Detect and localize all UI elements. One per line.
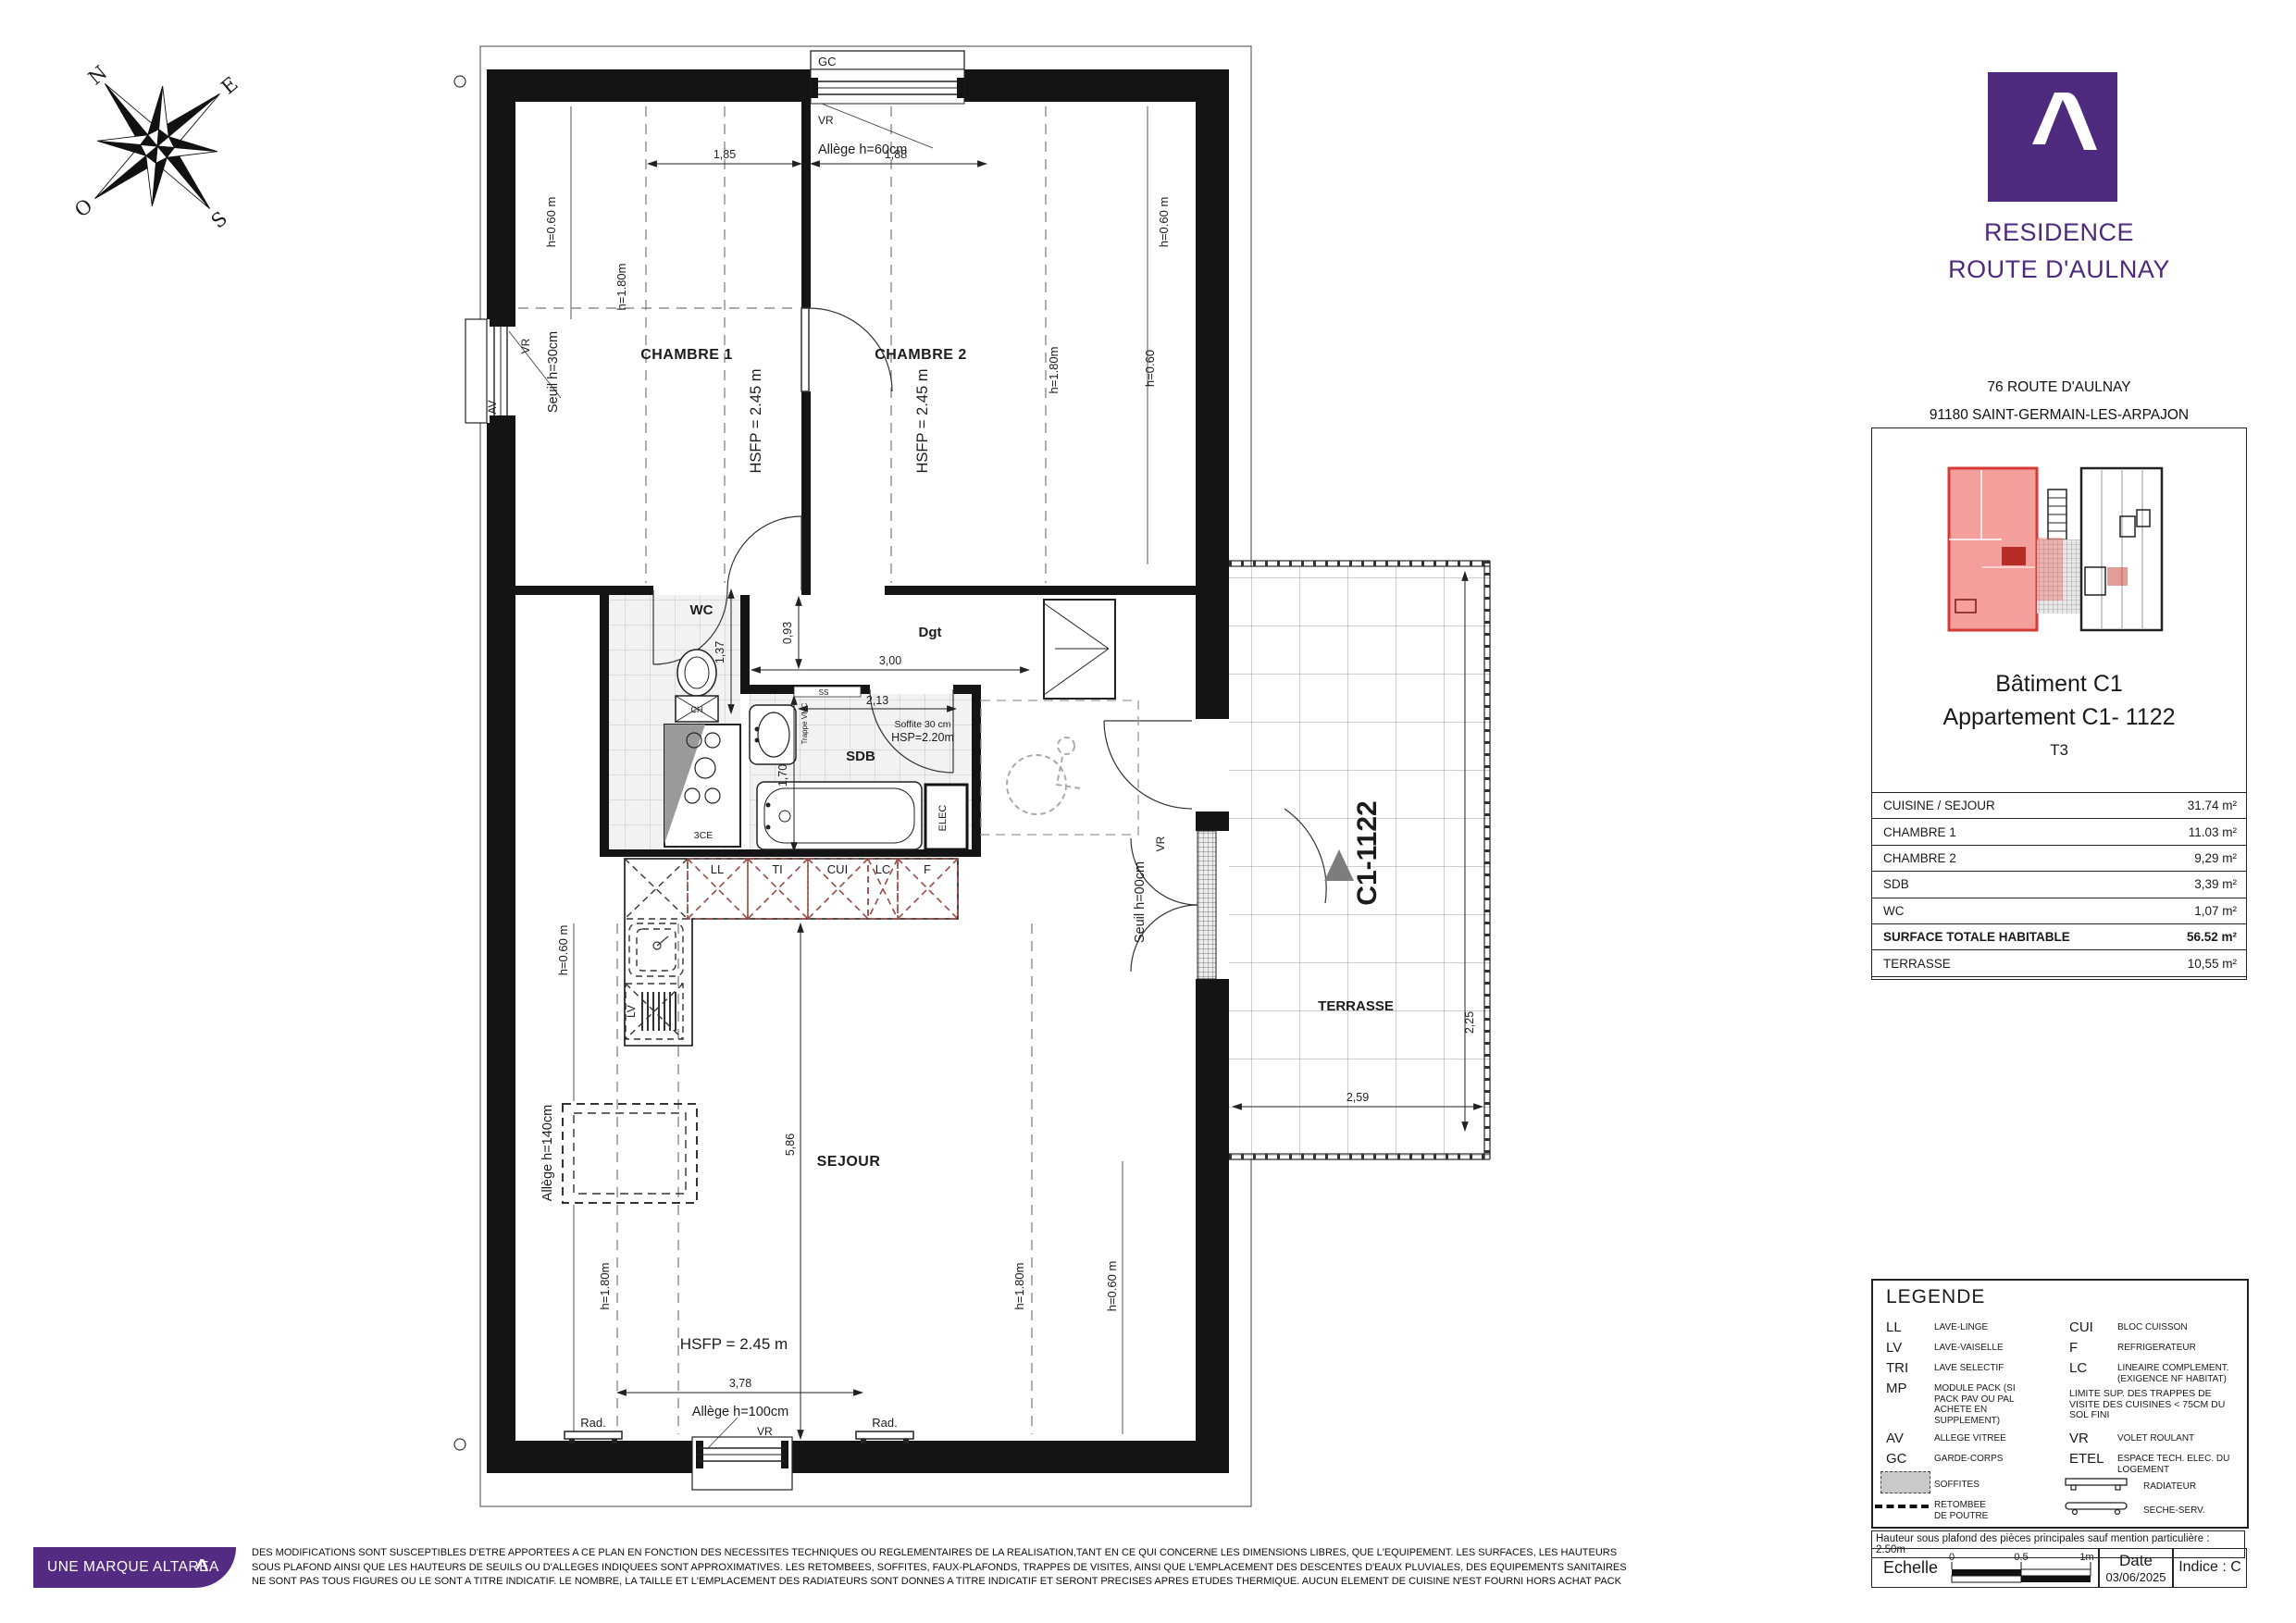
bay-allege140: Allège h=140cm xyxy=(540,1104,697,1203)
row-label: CUISINE / SEJOUR xyxy=(1883,799,1995,812)
terrasse-slider: VR Seuil h=00cm xyxy=(1131,831,1216,979)
compass-s: S xyxy=(207,207,231,233)
table-row: CUISINE / SEJOUR 31.74 m² xyxy=(1872,793,2246,819)
rad-right-label: Rad. xyxy=(872,1416,897,1430)
retombee-dash-icon xyxy=(1875,1505,1929,1508)
vr-left-label: VR xyxy=(519,338,532,353)
room-sejour: SEJOUR xyxy=(817,1154,881,1170)
dim-259: 2,59 xyxy=(1347,1091,1369,1104)
room-wc: WC xyxy=(690,602,714,618)
indice-value: Indice : C xyxy=(2178,1559,2241,1575)
floorplan-page: { "plan": { "compass": { "n": "N", "e": … xyxy=(0,0,2296,1623)
legend-abbr: AV xyxy=(1886,1431,1934,1446)
apartment-id-label: C1-1122 xyxy=(1352,800,1383,905)
unit-info-box: Bâtiment C1 Appartement C1- 1122 T3 CUIS… xyxy=(1871,427,2247,980)
kitchen-units xyxy=(688,859,958,919)
h060-left-mid: h=0.60 m xyxy=(556,925,570,976)
altarea-lambda-small-icon xyxy=(188,1555,212,1580)
floorplan-drawing: N E S O xyxy=(0,0,1860,1623)
compass-rose: N E S O xyxy=(11,2,304,296)
table-row: CHAMBRE 2 9,29 m² xyxy=(1872,846,2246,872)
legend-desc: LAVE-LINGE xyxy=(1934,1319,2045,1335)
room-dgt: Dgt xyxy=(919,625,942,640)
row-label: SDB xyxy=(1883,877,1909,891)
vr-bottom-label: VR xyxy=(757,1425,773,1438)
address-line2: 91180 SAINT-GERMAIN-LES-ARPAJON xyxy=(1871,407,2247,424)
room-chambre2: CHAMBRE 2 xyxy=(875,347,967,363)
kitchen-f: F xyxy=(924,862,931,876)
disclaimer-text: DES MODIFICATIONS SONT SUSCEPTIBLES D'ET… xyxy=(252,1546,1627,1590)
legend-abbr: F xyxy=(2069,1340,2117,1356)
dim-225: 2,25 xyxy=(1463,1011,1476,1034)
row-value: 56.52 m² xyxy=(2187,930,2237,944)
table-row: SDB 3,39 m² xyxy=(1872,872,2246,898)
legend-desc: GARDE-CORPS xyxy=(1934,1451,2045,1467)
h180-sejour-left: h=1.80m xyxy=(598,1263,612,1310)
dim-213: 2,13 xyxy=(866,694,888,707)
address-line1: 76 ROUTE D'AULNAY xyxy=(1871,379,2247,396)
hsp-label: HSP=2.20m xyxy=(891,731,954,744)
room-chambre1: CHAMBRE 1 xyxy=(640,347,733,363)
date-cell: Date 03/06/2025 xyxy=(2099,1548,2173,1588)
hsfp-ch1: HSFP = 2.45 m xyxy=(748,369,764,474)
dim-378: 3,78 xyxy=(729,1377,751,1390)
h180-ch2: h=1.80m xyxy=(1047,347,1061,394)
legend-abbr: TRI xyxy=(1886,1360,1934,1376)
dim-170: 1,70 xyxy=(776,764,789,787)
dim-137: 1,37 xyxy=(714,641,726,663)
wheelchair-icon xyxy=(1007,737,1081,814)
legend-abbr: GC xyxy=(1886,1451,1934,1467)
window-av: VR Seuil h=30cm AV xyxy=(465,319,561,423)
compass-n: N xyxy=(84,61,112,89)
legend-desc: MODULE PACK (SI PACK PAV OU PAL ACHETE E… xyxy=(1934,1381,2041,1426)
row-label: SURFACE TOTALE HABITABLE xyxy=(1883,930,2070,944)
legend-desc: LAVE-VAISELLE xyxy=(1934,1340,2045,1356)
disclaimer-line1: DES MODIFICATIONS SONT SUSCEPTIBLES D'ET… xyxy=(252,1546,1627,1561)
legend-soffites: SOFFITES xyxy=(1934,1477,1980,1491)
bathtub xyxy=(757,782,922,849)
scale-bar: 0 0.5 1m xyxy=(1946,1549,2098,1587)
vestibule xyxy=(981,600,1138,835)
key-plan xyxy=(1872,428,2246,667)
legend-title: LEGENDE xyxy=(1886,1286,1985,1308)
shower-3ce: 3CE xyxy=(664,725,740,847)
seche-serviette-icon xyxy=(2064,1501,2130,1516)
h180-sejour-right: h=1.80m xyxy=(1012,1263,1026,1310)
scale-1m: 1m xyxy=(2079,1552,2093,1563)
legend-abbr: LV xyxy=(1886,1340,1934,1356)
room-sdb: SDB xyxy=(846,749,875,764)
key-plan-neighbor-unit xyxy=(2081,468,2162,630)
kitchen-ti: TI xyxy=(772,862,783,876)
legend-abbr: LL xyxy=(1886,1319,1934,1335)
key-plan-unit-highlight xyxy=(1949,468,2037,630)
legend-retombee: RETOMBEE DE POUTRE xyxy=(1934,1497,1999,1521)
dishwasher: LV xyxy=(625,984,683,1039)
radiator-left: Rad. xyxy=(565,1416,622,1443)
legend-desc: REFRIGERATEUR xyxy=(2117,1340,2238,1356)
h060-left-top: h=0.60 m xyxy=(544,197,558,248)
date-label: Date xyxy=(2100,1552,2172,1570)
dim-586: 5,86 xyxy=(784,1134,797,1156)
surface-table: CUISINE / SEJOUR 31.74 m² CHAMBRE 1 11.0… xyxy=(1872,792,2246,977)
legend-abbr: VR xyxy=(2069,1431,2117,1446)
seuil30-label: Seuil h=30cm xyxy=(546,331,561,413)
kitchen-lc: LC xyxy=(875,862,891,876)
window-gc: GC VR Allège h=60cm xyxy=(811,51,964,157)
gc-label: GC xyxy=(818,55,837,68)
seuil00-label: Seuil h=00cm xyxy=(1133,861,1148,943)
legend-abbr: CUI xyxy=(2069,1319,2117,1335)
row-value: 1,07 m² xyxy=(2194,904,2237,918)
legend-box: LEGENDE LLLAVE-LINGE LVLAVE-VAISELLE TRI… xyxy=(1871,1279,2249,1529)
residence-title-line2: ROUTE D'AULNAY xyxy=(1871,255,2247,284)
legend-abbr: ETEL xyxy=(2069,1451,2117,1475)
ss-label: SS xyxy=(819,688,829,697)
legend-note: LIMITE SUP. DES TRAPPES DE VISITE DES CU… xyxy=(2069,1386,2228,1421)
kitchen-sink xyxy=(629,923,683,976)
row-value: 3,39 m² xyxy=(2194,877,2237,891)
disclaimer-line2: SOUS PLAFOND AINSI QUE LES HAUTEURS DE S… xyxy=(252,1561,1627,1576)
compass-e: E xyxy=(217,72,242,98)
row-label: WC xyxy=(1883,904,1905,918)
apartment-title: Appartement C1- 1122 xyxy=(1872,704,2246,731)
legend-abbr: LC xyxy=(2069,1360,2117,1384)
radiator-right: Rad. xyxy=(856,1416,913,1443)
h060-right-bottom: h=0.60 m xyxy=(1105,1261,1119,1312)
row-value: 9,29 m² xyxy=(2194,851,2237,865)
building-title: Bâtiment C1 xyxy=(1872,671,2246,698)
hsfp-ch2: HSFP = 2.45 m xyxy=(914,369,931,474)
room-terrasse: TERRASSE xyxy=(1318,998,1394,1014)
row-label: CHAMBRE 2 xyxy=(1883,851,1956,865)
indice-cell: Indice : C xyxy=(2173,1548,2247,1588)
elec-label: ELEC xyxy=(937,805,949,832)
date-value: 03/06/2025 xyxy=(2100,1570,2172,1584)
row-value: 31.74 m² xyxy=(2188,799,2237,812)
allege140-label: Allège h=140cm xyxy=(540,1105,555,1201)
av-label: AV xyxy=(486,400,499,414)
shower-label: 3CE xyxy=(694,830,713,841)
soffites-swatch-icon xyxy=(1880,1471,1930,1493)
kitchen-cui: CUI xyxy=(827,862,848,876)
legend-desc: LAVE SELECTIF xyxy=(1934,1360,2045,1376)
altarea-logo xyxy=(1988,72,2117,202)
residence-title-line1: RESIDENCE xyxy=(1871,218,2247,247)
h060-right-ch2: h=0.60 xyxy=(1143,350,1157,387)
legend-seche: SECHE-SERV. xyxy=(2143,1503,2205,1517)
row-label: TERRASSE xyxy=(1883,957,1951,971)
h180-ch1: h=1.80m xyxy=(614,264,628,311)
scale-label: Echelle xyxy=(1883,1558,1938,1578)
table-row: CHAMBRE 1 11.03 m² xyxy=(1872,819,2246,845)
scale-0: 0 xyxy=(1949,1552,1955,1563)
kitchen: LL TI CUI LC F LV xyxy=(625,859,958,1046)
table-row-total: SURFACE TOTALE HABITABLE 56.52 m² xyxy=(1872,924,2246,950)
legend-desc: BLOC CUISSON xyxy=(2117,1319,2238,1335)
altarea-brand-banner: UNE MARQUE ALTAREA xyxy=(33,1547,236,1588)
h060-right-top: h=0.60 m xyxy=(1157,197,1171,248)
disclaimer-line3: NE SONT PAS TOUS FIGURES OU LE SONT A TI… xyxy=(252,1575,1627,1590)
entry-closet xyxy=(1044,600,1115,699)
table-row: WC 1,07 m² xyxy=(1872,898,2246,924)
ch-label: CH xyxy=(691,705,703,714)
legend-abbr: MP xyxy=(1886,1381,1934,1426)
rad-left-label: Rad. xyxy=(580,1416,605,1430)
row-label: CHAMBRE 1 xyxy=(1883,825,1956,839)
dim-300: 3,00 xyxy=(879,654,901,667)
radiateur-icon xyxy=(2064,1477,2130,1492)
kitchen-corner-unit xyxy=(625,859,688,919)
dim-188: 1,88 xyxy=(885,148,907,161)
legend-radiateur: RADIATEUR xyxy=(2143,1479,2196,1493)
vr-top-label: VR xyxy=(818,114,834,127)
compass-o: O xyxy=(70,194,97,221)
table-row-terrasse: TERRASSE 10,55 m² xyxy=(1872,950,2246,976)
hsfp-sejour: HSFP = 2.45 m xyxy=(680,1335,788,1353)
altarea-lambda-icon xyxy=(1988,72,2117,202)
legend-desc: LINEAIRE COMPLEMENT. (EXIGENCE NF HABITA… xyxy=(2117,1360,2242,1384)
dim-093: 0,93 xyxy=(781,622,794,644)
lv-label: LV xyxy=(625,1005,638,1018)
legend-desc: ALLEGE VITREE xyxy=(1934,1431,2045,1446)
elec-closet: ELEC xyxy=(925,785,967,849)
legend-desc: VOLET ROULANT xyxy=(2117,1431,2238,1446)
scale-05: 0.5 xyxy=(2014,1552,2028,1563)
kitchen-ll: LL xyxy=(711,862,724,876)
allege100-label: Allège h=100cm xyxy=(692,1405,788,1419)
row-value: 10,55 m² xyxy=(2188,957,2237,971)
vr-terrasse-label: VR xyxy=(1154,836,1167,851)
legend-desc: ESPACE TECH. ELEC. DU LOGEMENT xyxy=(2117,1451,2238,1475)
soffite-label: Soffite 30 cm xyxy=(894,719,950,730)
apartment-type: T3 xyxy=(1872,741,2246,760)
scale-cell: Echelle 0 0.5 1m xyxy=(1871,1548,2099,1588)
dim-185: 1,85 xyxy=(714,148,736,161)
row-value: 11.03 m² xyxy=(2189,825,2237,839)
window-sejour: VR Allège h=100cm xyxy=(692,1405,792,1490)
